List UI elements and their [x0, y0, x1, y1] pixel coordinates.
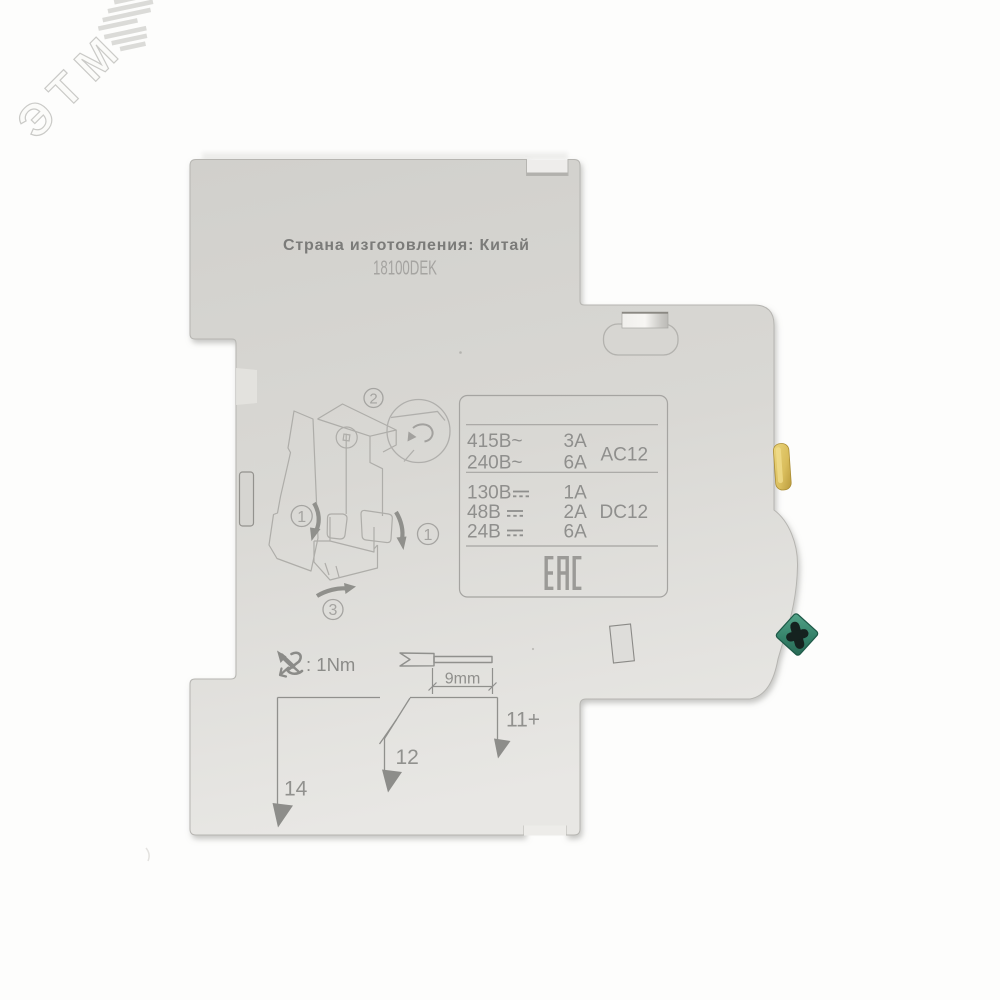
svg-text:48В: 48В [467, 502, 501, 523]
svg-text:DC12: DC12 [600, 502, 649, 523]
svg-text:415В~: 415В~ [467, 431, 522, 452]
svg-text:3: 3 [329, 602, 338, 619]
svg-text:6A: 6A [564, 453, 588, 474]
svg-text:130В: 130В [467, 482, 511, 503]
svg-text:Страна изготовления: Китай: Страна изготовления: Китай [283, 237, 529, 254]
svg-text:14: 14 [284, 778, 308, 801]
svg-text:1: 1 [297, 509, 306, 526]
svg-text:1A: 1A [564, 482, 588, 503]
svg-text:1: 1 [424, 527, 433, 544]
svg-text:12: 12 [396, 746, 419, 769]
svg-text:: 1Nm: : 1Nm [306, 654, 355, 675]
svg-text:240В~: 240В~ [467, 453, 522, 474]
svg-text:2: 2 [369, 390, 377, 407]
svg-text:9mm: 9mm [445, 671, 481, 688]
svg-text:11+: 11+ [506, 709, 540, 732]
svg-text:6A: 6A [564, 521, 588, 542]
svg-text:18100DEK: 18100DEK [373, 257, 437, 280]
svg-text:2A: 2A [564, 502, 588, 523]
svg-text:AC12: AC12 [601, 445, 649, 466]
svg-text:24В: 24В [467, 521, 501, 542]
svg-text:3A: 3A [564, 431, 588, 452]
